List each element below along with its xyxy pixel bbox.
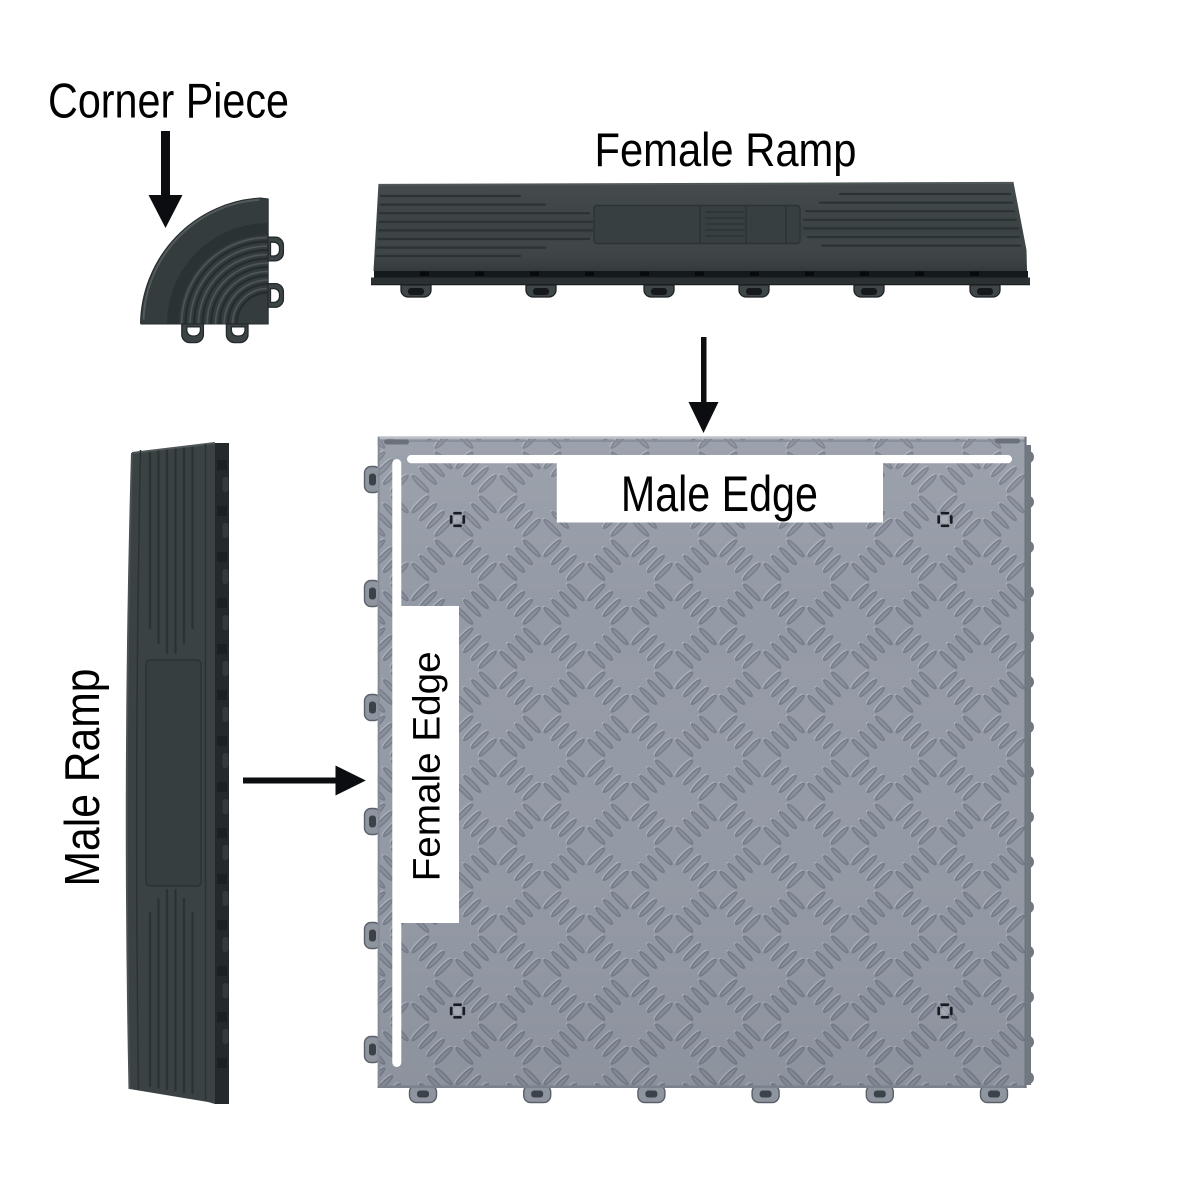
svg-text:Corner Piece: Corner Piece [48,74,289,128]
svg-text:Female Ramp: Female Ramp [595,123,857,176]
svg-text:Male Ramp: Male Ramp [56,669,110,887]
svg-text:Male Edge: Male Edge [621,466,818,522]
svg-text:Female Edge: Female Edge [406,651,448,881]
